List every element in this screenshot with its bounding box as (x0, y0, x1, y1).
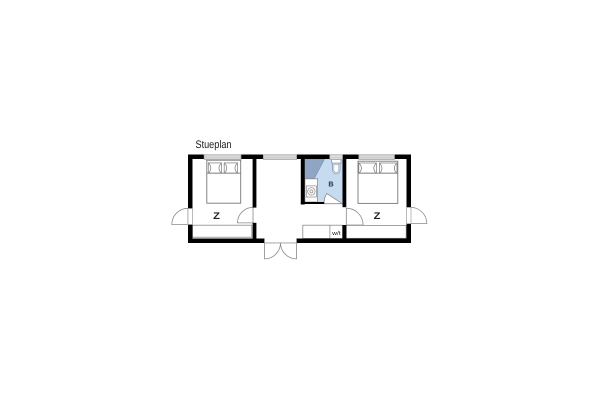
svg-text:Stueplan: Stueplan (196, 139, 232, 151)
svg-text:w/t: w/t (331, 230, 341, 237)
svg-text:Z: Z (213, 211, 220, 222)
svg-text:Z: Z (374, 211, 381, 222)
svg-text:B: B (328, 180, 333, 189)
